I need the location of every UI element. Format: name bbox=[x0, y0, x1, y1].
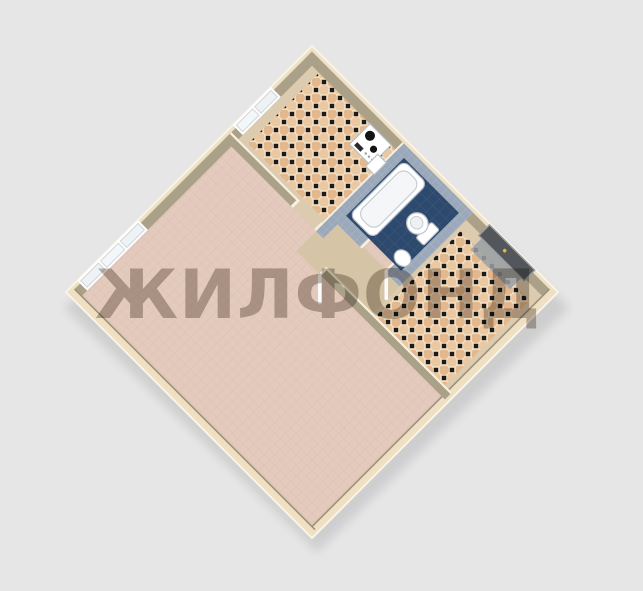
watermark-text: ЖИЛФОНД bbox=[95, 256, 541, 335]
floorplan-image: ЖИЛФОНД bbox=[0, 0, 643, 591]
floorplan-canvas: ЖИЛФОНД bbox=[0, 0, 643, 591]
